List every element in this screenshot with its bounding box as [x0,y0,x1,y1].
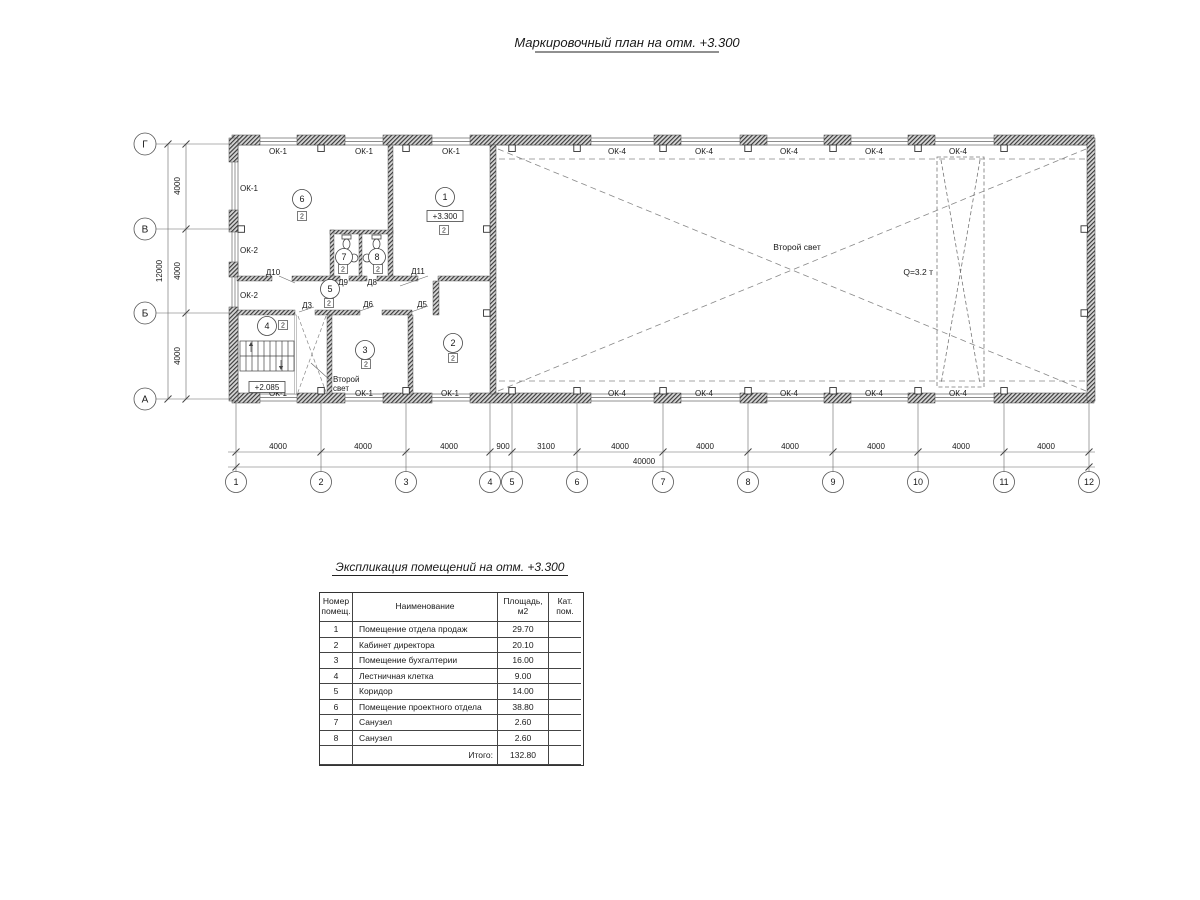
room-name: Санузел [353,715,498,731]
svg-text:2: 2 [376,267,380,274]
svg-text:10: 10 [913,477,923,487]
ok4-top-label: ОК-4 [608,147,627,156]
void-edge [295,315,297,394]
axis-8: 8 [738,472,759,493]
door-label-d6: Д6 [363,300,373,309]
svg-text:Г: Г [142,140,148,151]
dim-total-h: 40000 [633,457,656,466]
axis-circles-left: Г В Б А [134,133,156,410]
ok4-bottom-label: ОК-4 [949,389,968,398]
svg-text:9: 9 [830,477,835,487]
drawing-title: Маркировочный план на отм. +3.300 [514,35,740,52]
dim-total-v: 12000 [155,259,164,282]
svg-text:4000: 4000 [867,442,885,451]
ok4-bottom-label: ОК-4 [695,389,714,398]
room-category [549,715,581,731]
ok4-bottom-label: ОК-4 [608,389,627,398]
room-name: Помещение бухгалтерии [353,653,498,669]
wall-divider [490,145,496,394]
axis-a: А [134,388,156,410]
svg-text:11: 11 [999,477,1008,487]
col-header-category: Кат. пом. [549,593,581,622]
room-name: Помещение отдела продаж [353,622,498,638]
room-area: 29.70 [498,622,549,638]
room-number: 3 [320,653,353,669]
door-label-d11: Д11 [411,267,425,276]
svg-text:8: 8 [745,477,750,487]
dimension-labels: 4000 4000 4000 900 3100 4000 4000 4000 4… [155,177,1055,466]
ok2-left-label: ОК-2 [240,246,259,255]
svg-text:2: 2 [318,477,323,487]
wc-bowl-2 [373,239,380,249]
total-area: 132.80 [498,746,549,765]
svg-text:4000: 4000 [354,442,372,451]
svg-text:4000: 4000 [269,442,287,451]
ok1-left-label: ОК-1 [240,184,259,193]
svg-text:4000: 4000 [173,262,182,280]
room-name: Помещение проектного отдела [353,700,498,716]
total-row-empty [320,746,353,765]
svg-text:4000: 4000 [440,442,458,451]
room-mark-5: 5 2 [321,280,340,308]
windows [235,142,994,398]
annotations: Второй свет Q=3.2 т Второй свет [333,242,933,393]
axis-6: 6 [567,472,588,493]
svg-text:2: 2 [327,301,331,308]
room-area: 14.00 [498,684,549,700]
svg-text:4000: 4000 [173,347,182,365]
ok1-bottom-label: ОК-1 [355,389,374,398]
room-mark-7: 7 2 [336,249,353,274]
col-header-name: Наименование [353,593,498,622]
table-title: Экспликация помещений на отм. +3.300 [290,560,610,574]
svg-text:4: 4 [264,321,269,331]
svg-text:7: 7 [660,477,665,487]
svg-text:2: 2 [451,356,455,363]
svg-text:3: 3 [362,345,367,355]
window-labels: ОК-1 ОК-1 ОК-1 ОК-1 ОК-2 ОК-2 ОК-1 ОК-1 … [240,147,968,398]
total-label: Итого: [353,746,498,765]
total-category [549,746,581,765]
svg-text:4000: 4000 [781,442,799,451]
wc-bowl-1 [343,239,350,249]
svg-text:В: В [142,225,149,236]
svg-text:3: 3 [403,477,408,487]
svg-text:900: 900 [496,442,510,451]
door-label-d3: Д3 [302,301,312,310]
second-light-hall: Второй свет [773,242,821,252]
ok4-top-label: ОК-4 [780,147,799,156]
svg-text:2: 2 [442,228,446,235]
room-area: 2.60 [498,731,549,747]
ok4-top-label: ОК-4 [865,147,884,156]
axis-g: Г [134,133,156,155]
svg-text:5: 5 [327,284,332,294]
ok2-left-label: ОК-2 [240,291,259,300]
svg-text:4000: 4000 [611,442,629,451]
room-category [549,622,581,638]
room-name: Лестничная клетка [353,669,498,685]
room-mark-6: 6 2 [293,190,312,221]
ok1-top-label: ОК-1 [269,147,288,156]
axis-10: 10 [908,472,929,493]
room-category [549,638,581,654]
svg-text:2: 2 [450,338,455,348]
svg-text:4000: 4000 [952,442,970,451]
room-number: 4 [320,669,353,685]
svg-text:5: 5 [509,477,514,487]
stair-elevation: +2.085 [249,382,285,393]
axis-b: Б [134,302,156,324]
explication-table: Номер помещ. Наименование Площадь, м2 Ка… [319,592,584,766]
axis-3: 3 [396,472,417,493]
ok4-bottom-label: ОК-4 [780,389,799,398]
ok4-bottom-label: ОК-4 [865,389,884,398]
drawing-sheet: { "title": "Маркировочный план на отм. +… [0,0,1200,900]
wc-tank-1 [342,235,351,239]
axis-11: 11 [994,472,1015,493]
svg-text:А: А [142,395,149,406]
svg-text:4000: 4000 [696,442,714,451]
crane-outline [937,157,984,387]
svg-text:Б: Б [142,309,149,320]
room-number: 8 [320,731,353,747]
room-mark-1: 1 +3.300 2 [427,188,463,235]
col-header-area: Площадь, м2 [498,593,549,622]
col-header-number: Номер помещ. [320,593,353,622]
room-category [549,700,581,716]
room-number: 2 [320,638,353,654]
wc-tank-2 [372,235,381,239]
door-leaders [279,276,428,381]
axis-v: В [134,218,156,240]
svg-text:2: 2 [341,267,345,274]
page-title: Маркировочный план на отм. +3.300 [514,35,740,50]
axis-4: 4 [480,472,501,493]
svg-text:7: 7 [341,252,346,262]
room-number: 7 [320,715,353,731]
svg-text:2: 2 [281,323,285,330]
second-light-office-1: Второй [333,375,359,384]
door-label-d5: Д5 [417,300,427,309]
axis-1: 1 [226,472,247,493]
room-area: 20.10 [498,638,549,654]
room-number: 6 [320,700,353,716]
axis-9: 9 [823,472,844,493]
second-light-office-2: свет [333,384,349,393]
axis-7: 7 [653,472,674,493]
wall-right-hatch [1087,138,1095,401]
svg-text:1: 1 [442,192,447,202]
room-category [549,653,581,669]
svg-text:2: 2 [364,362,368,369]
svg-text:8: 8 [374,252,379,262]
ok1-bottom-label: ОК-1 [441,389,460,398]
room-name: Кабинет директора [353,638,498,654]
room-area: 9.00 [498,669,549,685]
crane-capacity: Q=3.2 т [903,267,933,277]
elevation-main: +3.300 [433,212,458,221]
room-mark-2: 2 2 [444,334,463,363]
room-number: 1 [320,622,353,638]
room-mark-8: 8 2 [369,249,386,274]
svg-text:4: 4 [487,477,492,487]
room-category [549,669,581,685]
svg-text:2: 2 [300,214,304,221]
room-category [549,684,581,700]
room-number: 5 [320,684,353,700]
stairs [240,341,294,371]
room-area: 2.60 [498,715,549,731]
svg-text:4000: 4000 [1037,442,1055,451]
ok4-top-label: ОК-4 [949,147,968,156]
svg-text:6: 6 [574,477,579,487]
axis-12: 12 [1079,472,1100,493]
door-label-d10: Д10 [266,268,281,277]
room-area: 38.80 [498,700,549,716]
room-mark-4: 4 2 [258,317,288,336]
axis-5: 5 [502,472,523,493]
room-area: 16.00 [498,653,549,669]
void-diagonals [298,316,326,392]
room-name: Санузел [353,731,498,747]
svg-text:3100: 3100 [537,442,555,451]
svg-text:12: 12 [1084,477,1094,487]
svg-text:1: 1 [233,477,238,487]
axis-circles-bottom: 1 2 3 4 5 6 7 8 9 10 11 12 [226,472,1100,493]
ok1-top-label: ОК-1 [442,147,461,156]
axis-2: 2 [311,472,332,493]
ok4-top-label: ОК-4 [695,147,714,156]
ok1-top-label: ОК-1 [355,147,374,156]
room-category [549,731,581,747]
door-label-d8: Д8 [367,278,377,287]
elevation-stair: +2.085 [255,383,280,392]
room-name: Коридор [353,684,498,700]
svg-text:6: 6 [299,194,304,204]
door-label-d9: Д9 [338,278,348,287]
hall-diagonals [498,149,1086,391]
room-mark-3: 3 2 [356,341,375,369]
floor-plan: Маркировочный план на отм. +3.300 [0,0,1200,545]
svg-text:4000: 4000 [173,177,182,195]
